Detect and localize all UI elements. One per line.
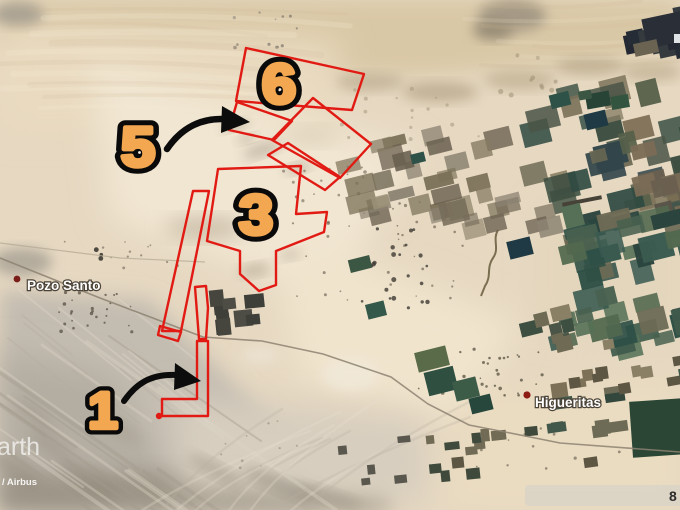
svg-text:Higueritas: Higueritas bbox=[535, 395, 601, 410]
svg-text:1: 1 bbox=[88, 383, 117, 440]
svg-text:8: 8 bbox=[669, 488, 677, 504]
svg-text:/ Airbus: / Airbus bbox=[2, 477, 37, 488]
svg-text:Pozo Santo: Pozo Santo bbox=[27, 278, 101, 293]
svg-text:3: 3 bbox=[239, 185, 273, 247]
svg-text:6: 6 bbox=[262, 54, 296, 116]
svg-text:5: 5 bbox=[121, 117, 155, 179]
svg-text:arth: arth bbox=[0, 433, 40, 461]
